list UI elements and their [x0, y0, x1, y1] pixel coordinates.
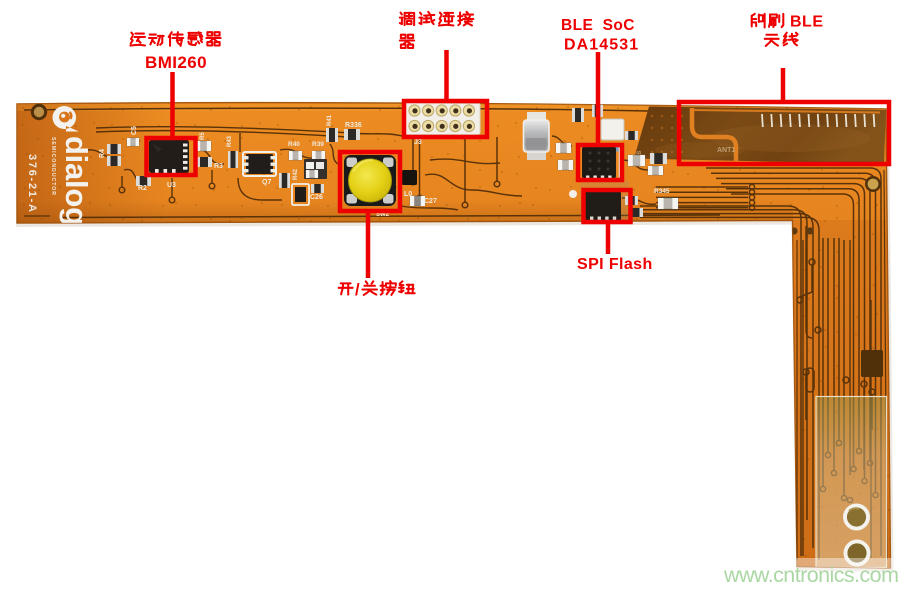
svg-text:/: /: [355, 281, 360, 299]
svg-text:R5: R5: [200, 132, 206, 140]
svg-text:U3: U3: [167, 182, 176, 189]
svg-text:R40: R40: [288, 141, 300, 148]
svg-text:BLE: BLE: [790, 14, 824, 31]
svg-text:ANT1: ANT1: [717, 147, 735, 154]
svg-text:R42: R42: [293, 168, 299, 180]
svg-text:R345: R345: [654, 188, 670, 195]
svg-text:Q7: Q7: [262, 179, 271, 186]
svg-text:SEMICONDUCTOR: SEMICONDUCTOR: [50, 137, 56, 195]
svg-text:BLE SoC: BLE SoC: [561, 17, 635, 34]
svg-text:SPI Flash: SPI Flash: [577, 256, 653, 273]
svg-text:R3: R3: [214, 163, 223, 170]
svg-text:C5: C5: [131, 126, 138, 135]
svg-text:C27: C27: [424, 198, 437, 205]
svg-text:C26: C26: [310, 194, 323, 201]
svg-text:R39: R39: [312, 141, 324, 148]
svg-text:R41: R41: [327, 114, 333, 126]
svg-text:376-21-A: 376-21-A: [26, 154, 38, 212]
svg-text:BMI260: BMI260: [145, 53, 207, 72]
svg-text:R43: R43: [227, 135, 233, 147]
svg-text:R2: R2: [138, 185, 147, 192]
svg-text:www.cntronics.com: www.cntronics.com: [723, 563, 899, 587]
svg-text:dialog: dialog: [59, 136, 94, 226]
svg-text:R4: R4: [99, 149, 106, 158]
svg-text:L0: L0: [404, 191, 412, 198]
svg-text:R336: R336: [345, 122, 362, 129]
svg-text:DA14531: DA14531: [564, 37, 639, 54]
svg-text:J3: J3: [414, 139, 422, 146]
